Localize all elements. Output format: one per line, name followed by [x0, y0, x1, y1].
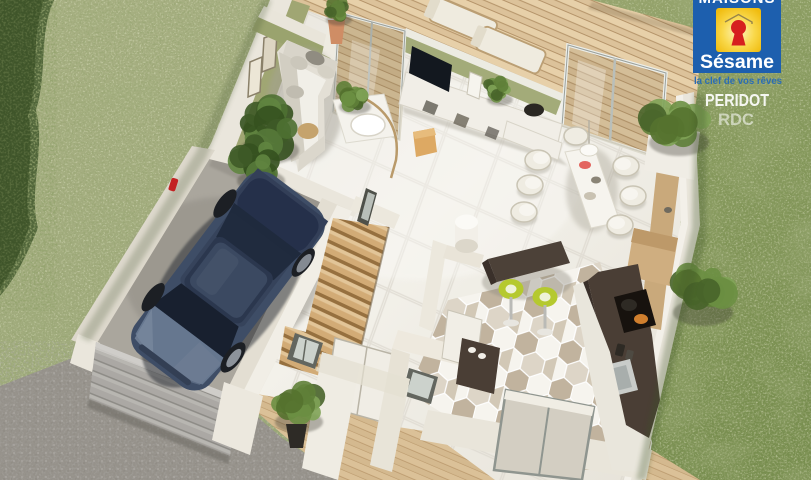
- svg-text:PERIDOT: PERIDOT: [705, 90, 769, 110]
- svg-text:Sésame: Sésame: [700, 52, 774, 73]
- svg-text:MAISONS: MAISONS: [698, 0, 775, 7]
- svg-text:RDC: RDC: [718, 111, 754, 129]
- svg-text:la clef de vos rêves: la clef de vos rêves: [694, 76, 782, 87]
